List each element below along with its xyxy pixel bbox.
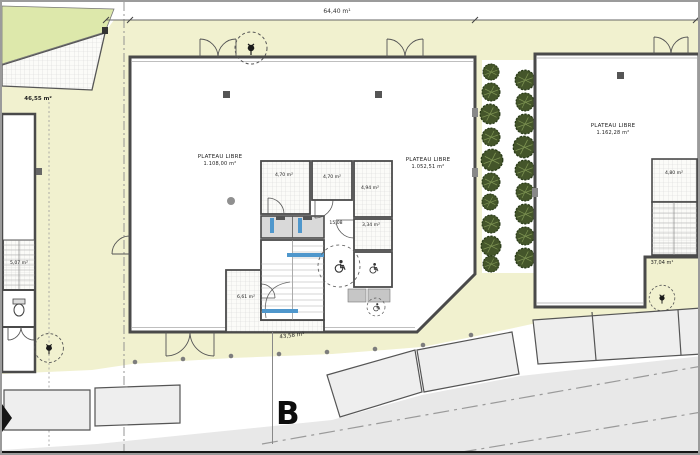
pilaster <box>472 108 478 117</box>
elevator <box>261 216 324 238</box>
room-d <box>354 219 392 250</box>
frame-bottom <box>2 451 700 455</box>
column <box>227 197 235 205</box>
floor-plan-canvas: 64,40 m¹ 46,55 m² PLATEAU LIBRE PLATEAU … <box>0 0 700 455</box>
column <box>36 168 42 175</box>
room-c <box>354 161 392 217</box>
accessible-wc <box>354 252 392 287</box>
core-room <box>652 159 697 202</box>
left-building <box>2 114 42 372</box>
toilet-icon <box>13 299 25 316</box>
planting-strip <box>480 60 535 273</box>
room-b <box>312 161 352 200</box>
column <box>617 72 624 79</box>
parking-stall <box>95 385 180 426</box>
parking-stall <box>4 390 90 430</box>
pilaster <box>472 168 478 177</box>
column <box>223 91 230 98</box>
duct <box>368 289 390 302</box>
pilaster <box>532 188 538 197</box>
stairwell-right <box>652 202 697 255</box>
column <box>375 91 382 98</box>
plan-svg <box>2 2 700 455</box>
main-stair <box>261 240 324 320</box>
duct <box>348 289 366 302</box>
